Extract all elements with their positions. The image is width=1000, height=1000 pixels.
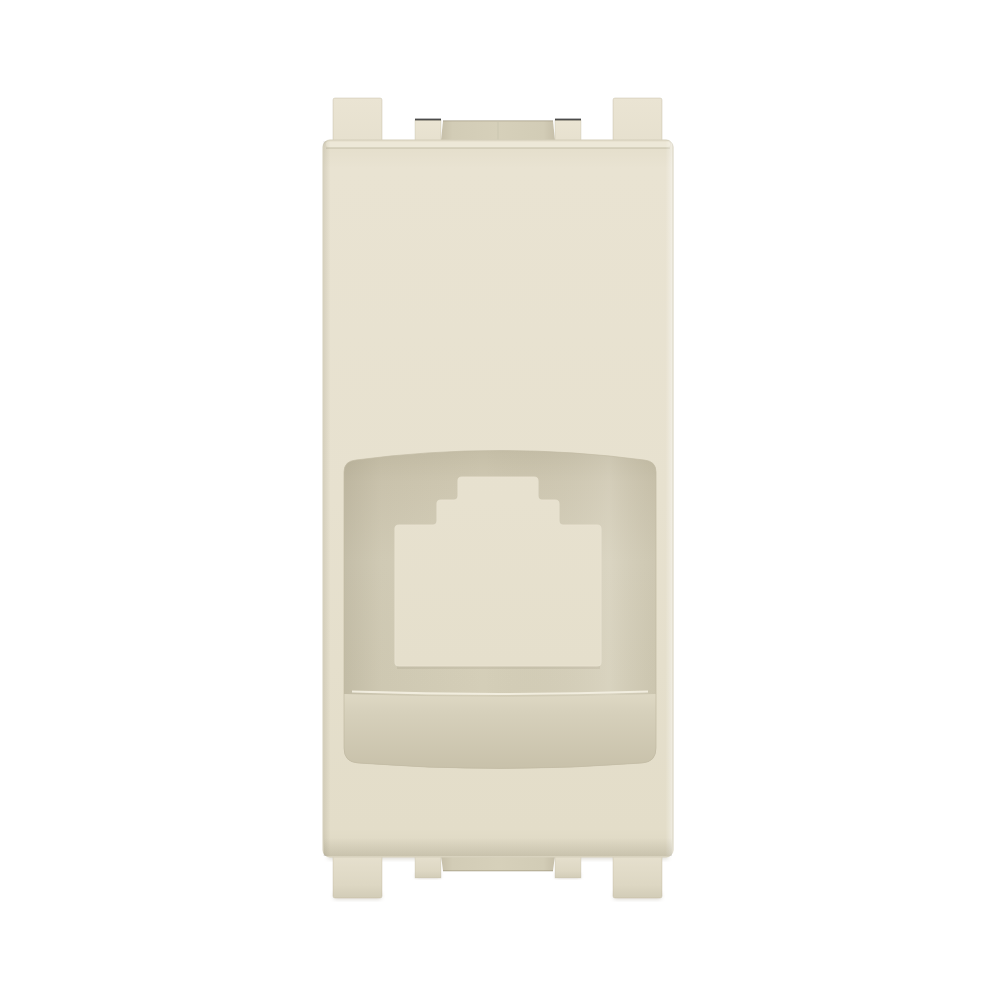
body-left-shade (324, 141, 331, 856)
body-bottom-shade (324, 838, 672, 856)
body-right-shade (666, 141, 673, 856)
mounting-tab-top-right (613, 98, 662, 144)
latch-tab-bottom-left (415, 855, 441, 878)
mounting-tab-top-left (333, 98, 382, 144)
bottom-channel-edge (443, 870, 553, 871)
top-channel-edge (443, 120, 553, 121)
mounting-tab-bottom-left (333, 855, 382, 898)
product-photo (0, 0, 1000, 1000)
mold-mark-top-left (415, 119, 441, 121)
latch-tab-bottom-right (555, 855, 581, 878)
body-top-bevel (326, 142, 670, 148)
recess-shelf (344, 694, 656, 769)
body-top-bevel-line (326, 148, 670, 149)
mounting-tab-bottom-right (613, 855, 662, 898)
mold-mark-top-right (555, 119, 581, 121)
faceplate-product-image (0, 0, 1000, 1000)
